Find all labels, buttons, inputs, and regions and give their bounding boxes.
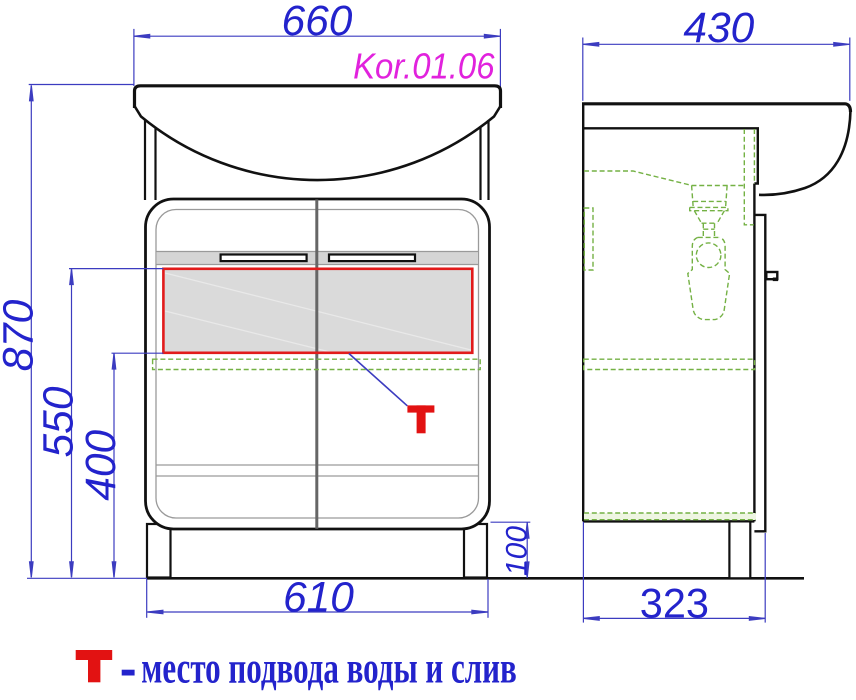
- svg-text:660: 660: [282, 0, 353, 45]
- svg-text:место подвода воды и слив: место подвода воды и слив: [141, 645, 516, 694]
- svg-text:550: 550: [35, 386, 82, 457]
- svg-text:Kor.01.06: Kor.01.06: [353, 47, 495, 87]
- svg-text:610: 610: [283, 575, 354, 622]
- svg-text:870: 870: [0, 300, 42, 372]
- svg-text:430: 430: [683, 5, 754, 52]
- svg-text:323: 323: [640, 579, 709, 626]
- svg-text:100: 100: [501, 526, 534, 576]
- svg-text:400: 400: [78, 429, 125, 500]
